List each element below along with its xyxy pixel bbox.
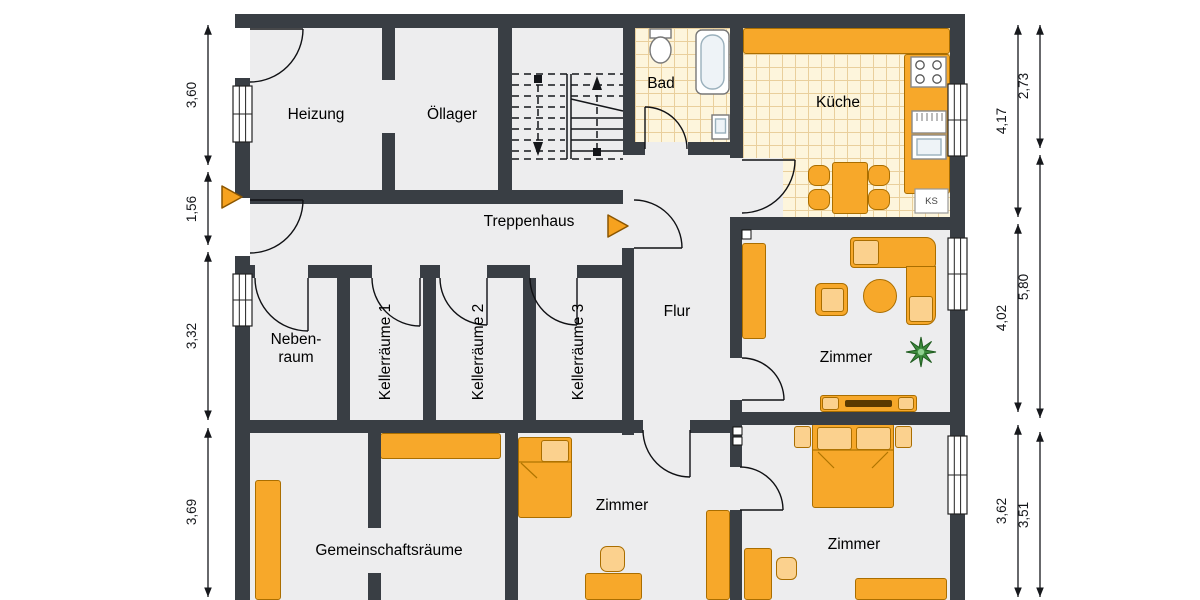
desk [585,573,642,600]
pillow [541,440,569,462]
sofa-cushion [909,296,933,322]
dimension-left: 3,60 1,56 3,32 3,69 [184,25,208,597]
room-label-oellager: Öllager [427,106,477,124]
wall-segment [382,28,395,80]
storage-cabinet [255,480,281,600]
wall-segment [420,265,440,278]
room-label-treppenhaus: Treppenhaus [484,213,575,231]
dimension-label: 5,80 [1016,274,1031,300]
side-table-round [863,279,897,313]
room-label-heizung: Heizung [288,106,345,124]
kitchen-chair [808,165,830,186]
bedroom-wardrobe [706,510,730,600]
room-label-zimmer-unten: Zimmer [828,536,881,554]
wall-segment [730,412,965,425]
room-label-keller3: Kellerräume 3 [570,304,588,401]
wall-segment [382,133,395,204]
dimension-label: 4,02 [994,305,1009,331]
wall-segment [688,142,732,155]
kitchen-door-swing-area [743,158,783,217]
wall-segment [505,433,518,600]
wall-segment [730,230,742,358]
armchair-cushion [821,288,844,312]
wall-segment [950,514,965,600]
dimension-label: 4,17 [994,108,1009,134]
wall-segment [423,278,436,420]
kitchen-chair [808,189,830,210]
wall-segment [235,78,250,86]
wall-segment [623,28,635,154]
kitchen-table [832,162,868,214]
room-label-keller2: Kellerräume 2 [470,304,488,401]
dimension-label: 3,69 [184,499,199,525]
pillow [856,427,891,450]
wall-segment [368,573,381,600]
kitchen-counter-top [743,28,950,54]
wall-segment [523,278,536,420]
dimension-label: 3,51 [1016,502,1031,528]
wall-segment [235,326,250,600]
room-label-keller1: Kellerräume 1 [377,304,395,401]
room-label-zimmer-mitte: Zimmer [596,497,649,515]
floor-plan: KS 3,60 1,56 3,32 [0,0,1200,600]
wall-segment [622,248,634,435]
window [948,436,967,514]
wall-segment [730,425,742,467]
window [948,238,967,310]
wall-segment [250,190,623,204]
pillow [817,427,852,450]
living-room-wardrobe [742,243,766,339]
desk-chair [600,546,625,572]
wall-segment [730,217,965,230]
desk [744,548,772,600]
room-label-zimmer-wohnen: Zimmer [820,349,873,367]
desk-chair [776,557,797,580]
dimension-right-inner: 4,17 4,02 3,62 [994,25,1018,597]
nightstand [794,426,811,448]
room-label-gemeinschaft: Gemeinschaftsräume [315,542,462,560]
dimension-label: 3,32 [184,323,199,349]
speaker [898,397,914,410]
room-label-flur: Flur [664,303,691,321]
wall-segment [235,142,250,198]
wall-segment [498,28,512,204]
sofa-cushion [853,240,879,265]
kitchen-chair [868,165,890,186]
wall-segment [730,28,743,158]
tv-screen [845,400,892,407]
wall-segment [368,433,381,528]
wall-segment [487,265,530,278]
wall-segment [308,265,372,278]
wall-segment [235,256,250,274]
wall-segment [623,142,645,155]
room-label-nebenraum: Neben- raum [271,331,322,367]
dimension-label: 2,73 [1016,73,1031,99]
room-label-bad: Bad [647,75,675,93]
wall-segment [337,278,350,420]
dimension-label: 1,56 [184,196,199,222]
wall-segment [250,265,255,278]
dimension-label: 3,62 [994,498,1009,524]
wall-segment [730,510,742,600]
wall-segment [950,28,965,84]
sideboard [380,433,501,459]
speaker [822,397,839,410]
room-label-kueche: Küche [816,94,860,112]
wall-segment [235,14,965,28]
dimension-label: 3,60 [184,82,199,108]
dimension-right-outer: 2,73 5,80 3,51 [1016,25,1040,597]
wall-segment [250,420,643,433]
kitchen-counter-right [904,54,950,194]
nightstand [895,426,912,448]
window [948,84,967,156]
dresser [855,578,947,600]
kitchen-chair [868,189,890,210]
